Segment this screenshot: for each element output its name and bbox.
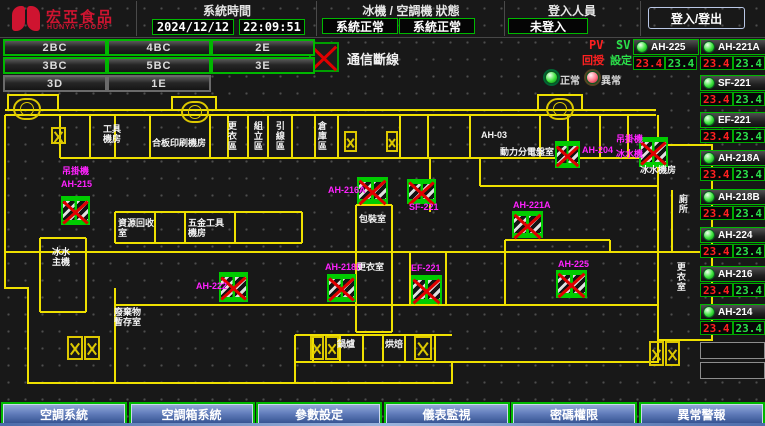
sv-value-AH-221A: 23.4 bbox=[733, 56, 765, 70]
equipment-label: AH-215 bbox=[61, 180, 92, 190]
comm-loss-marker-AH-225[interactable] bbox=[556, 270, 587, 298]
room-label: 鍋爐 bbox=[337, 340, 355, 350]
floor-button-3D[interactable]: 3D bbox=[3, 75, 107, 92]
equip-name: AH-218B bbox=[718, 192, 760, 203]
stair-symbol bbox=[414, 336, 432, 360]
floor-button-3BC[interactable]: 3BC bbox=[3, 57, 107, 74]
room-label: 更衣室 bbox=[357, 263, 384, 273]
stair-symbol bbox=[665, 341, 680, 366]
equip-row-AH-225[interactable]: AH-225 bbox=[633, 39, 699, 55]
status-led-icon bbox=[703, 191, 715, 203]
pv-value-AH-218A: 23.4 bbox=[700, 167, 733, 181]
equip-row-AH-218A[interactable]: AH-218A bbox=[700, 150, 765, 166]
pv-value-AH-221A: 23.4 bbox=[700, 56, 733, 70]
equip-row-AH-224[interactable]: AH-224 bbox=[700, 227, 765, 243]
comm-loss-marker-AH-204[interactable] bbox=[555, 141, 580, 168]
floor-button-3E[interactable]: 3E bbox=[211, 57, 315, 74]
empty-slot bbox=[700, 362, 765, 379]
fan-icon bbox=[181, 101, 209, 123]
sv-value-EF-221: 23.4 bbox=[733, 129, 765, 143]
chiller-status-value: 系統正常 bbox=[322, 18, 398, 34]
pv-value-AH-218B: 23.4 bbox=[700, 206, 733, 220]
equipment-label: AH-216A bbox=[328, 186, 366, 196]
pv-value-EF-221: 23.4 bbox=[700, 129, 733, 143]
sv-value-AH-214: 23.4 bbox=[733, 321, 765, 335]
login-status-value: 未登入 bbox=[508, 18, 588, 34]
equipment-label: AH-225 bbox=[558, 260, 589, 270]
status-led-icon bbox=[703, 229, 715, 241]
equipment-label: EF-221 bbox=[411, 264, 441, 274]
sv-value-SF-221: 23.4 bbox=[733, 92, 765, 106]
comm-loss-marker-AH-215[interactable] bbox=[61, 196, 90, 225]
empty-slot bbox=[700, 342, 765, 359]
room-label: 冰水 主機 bbox=[52, 248, 70, 268]
equipment-label: 吊掛機 bbox=[616, 135, 643, 145]
status-led-icon bbox=[703, 114, 715, 126]
sv-value-AH-218A: 23.4 bbox=[733, 167, 765, 181]
equip-row-EF-221[interactable]: EF-221 bbox=[700, 112, 765, 128]
equip-name: AH-214 bbox=[718, 307, 752, 318]
sv-value-AH-225: 23.4 bbox=[665, 56, 697, 70]
comm-loss-marker-AH-218B[interactable] bbox=[327, 274, 356, 302]
comm-loss-legend-label: 通信斷線 bbox=[347, 49, 399, 68]
equipment-label: 吊掛機 bbox=[62, 167, 89, 177]
comm-loss-marker-EF-221[interactable] bbox=[411, 275, 442, 304]
equipment-label: SF-221 bbox=[409, 203, 439, 213]
status-led-icon bbox=[703, 152, 715, 164]
sv-value-AH-216: 23.4 bbox=[733, 283, 765, 297]
equip-row-AH-221A[interactable]: AH-221A bbox=[700, 39, 765, 55]
floor-button-1E[interactable]: 1E bbox=[107, 75, 211, 92]
room-label: 合板印刷機房 bbox=[152, 139, 206, 149]
scada-screen: { "header": { "logo_text": "宏亞食品", "logo… bbox=[0, 0, 765, 426]
room-label: 更衣區 bbox=[226, 121, 236, 151]
system-time-value: 22:09:51 bbox=[239, 19, 305, 35]
ac-status-value: 系統正常 bbox=[399, 18, 475, 34]
logo-subtext: HUNYA FOODS bbox=[47, 24, 109, 31]
comm-loss-marker-冰水機[interactable] bbox=[639, 137, 668, 167]
stair-symbol bbox=[51, 127, 66, 144]
abnormal-legend-label: 異常 bbox=[601, 72, 621, 87]
sv-value-AH-224: 23.4 bbox=[733, 244, 765, 258]
floor-button-2E[interactable]: 2E bbox=[211, 39, 315, 56]
system-time-label: 系統時間 bbox=[137, 2, 317, 19]
room-label: 烘焙 bbox=[385, 340, 403, 350]
pv-name-label: 回授 bbox=[582, 52, 604, 68]
room-label: AH-03 bbox=[481, 131, 507, 141]
status-led-icon bbox=[703, 268, 715, 280]
pv-label: PV bbox=[589, 38, 603, 52]
normal-led-icon bbox=[545, 71, 558, 84]
room-label: 廢棄物 暫存室 bbox=[114, 308, 141, 328]
floor-button-4BC[interactable]: 4BC bbox=[107, 39, 211, 56]
header-bar: 宏亞食品 HUNYA FOODS 系統時間 2024/12/12 22:09:5… bbox=[0, 0, 765, 38]
comm-loss-marker-AH-221A[interactable] bbox=[512, 211, 543, 238]
pv-value-AH-225: 23.4 bbox=[633, 56, 665, 70]
separator bbox=[640, 1, 641, 36]
pv-value-SF-221: 23.4 bbox=[700, 92, 733, 106]
room-label: 工具 機房 bbox=[103, 125, 121, 145]
chiller-ac-status-label: 冰機 / 空調機 狀態 bbox=[317, 2, 505, 19]
equipment-label: AH-221A bbox=[513, 201, 551, 211]
equip-name: SF-221 bbox=[718, 78, 751, 89]
equip-name: EF-221 bbox=[718, 115, 751, 126]
room-label: 動力分電盤室 bbox=[500, 148, 554, 158]
equip-name: AH-225 bbox=[651, 42, 685, 53]
floor-button-5BC[interactable]: 5BC bbox=[107, 57, 211, 74]
fan-icon bbox=[546, 98, 574, 120]
stair-symbol bbox=[67, 336, 83, 360]
room-label: 更衣室 bbox=[675, 262, 685, 292]
login-logout-button[interactable]: 登入/登出 bbox=[648, 7, 745, 29]
status-led-icon bbox=[703, 77, 715, 89]
stair-symbol bbox=[386, 131, 398, 152]
equipment-label: AH-204 bbox=[582, 146, 613, 156]
pv-value-AH-214: 23.4 bbox=[700, 321, 733, 335]
room-label: 廁所 bbox=[677, 194, 687, 214]
equip-row-AH-216[interactable]: AH-216 bbox=[700, 266, 765, 282]
status-led-icon bbox=[703, 306, 715, 318]
equip-name: AH-224 bbox=[718, 230, 752, 241]
login-user-label: 登入人員 bbox=[505, 2, 639, 19]
equip-row-AH-214[interactable]: AH-214 bbox=[700, 304, 765, 320]
abnormal-led-icon bbox=[586, 71, 599, 84]
room-label: 引線區 bbox=[274, 121, 284, 151]
normal-legend-label: 正常 bbox=[560, 72, 580, 87]
equipment-label: 冰水機 bbox=[616, 150, 643, 160]
logo-icon bbox=[12, 6, 25, 31]
equip-name: AH-216 bbox=[718, 269, 752, 280]
room-label: 倉庫區 bbox=[316, 121, 326, 151]
pv-value-AH-216: 23.4 bbox=[700, 283, 733, 297]
room-label: 資源回收 室 bbox=[118, 219, 154, 239]
fan-icon bbox=[13, 98, 41, 120]
equip-name: AH-221A bbox=[718, 42, 760, 53]
pv-value-AH-224: 23.4 bbox=[700, 244, 733, 258]
room-label: 冰水機房 bbox=[640, 166, 676, 176]
equip-name: AH-218A bbox=[718, 153, 760, 164]
equip-row-AH-218B[interactable]: AH-218B bbox=[700, 189, 765, 205]
status-led-icon bbox=[636, 41, 648, 53]
equip-row-SF-221[interactable]: SF-221 bbox=[700, 75, 765, 91]
room-label: 五金工具 機房 bbox=[188, 219, 224, 239]
status-led-icon bbox=[703, 41, 715, 53]
system-date-value: 2024/12/12 bbox=[152, 19, 234, 35]
stair-symbol bbox=[649, 341, 664, 366]
sv-value-AH-218B: 23.4 bbox=[733, 206, 765, 220]
stair-symbol bbox=[310, 336, 324, 360]
stair-symbol bbox=[84, 336, 100, 360]
logo-icon bbox=[27, 6, 40, 31]
comm-loss-marker-SF-221[interactable] bbox=[407, 179, 436, 204]
sv-name-label: 設定 bbox=[610, 52, 632, 68]
room-label: 組立區 bbox=[252, 121, 262, 151]
sv-label: SV bbox=[616, 38, 630, 52]
room-label: 包裝室 bbox=[359, 215, 386, 225]
equipment-label: AH-222 bbox=[196, 282, 227, 292]
floor-button-2BC[interactable]: 2BC bbox=[3, 39, 107, 56]
stair-symbol bbox=[344, 131, 357, 152]
